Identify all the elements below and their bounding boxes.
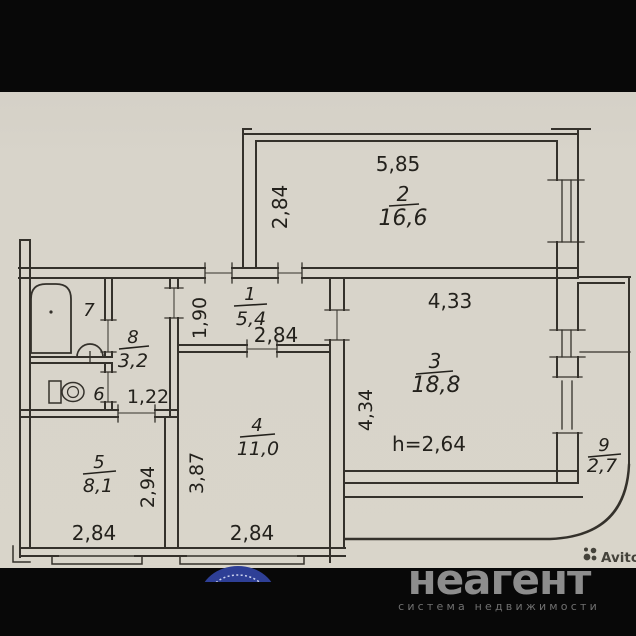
- room8-area: 3,2: [118, 350, 148, 372]
- room4-area: 11,0: [237, 438, 279, 460]
- dim-wc-width: 1,22: [127, 386, 169, 408]
- room1-number: 1: [244, 284, 255, 305]
- room5-area: 8,1: [83, 475, 113, 497]
- dim-room4-width: 2,84: [230, 521, 275, 545]
- room3-number: 3: [429, 349, 442, 373]
- dim-room4-depth: 3,87: [186, 452, 208, 494]
- room9-number: 9: [598, 435, 609, 456]
- agency-brand: неагент: [408, 555, 592, 604]
- avito-dot-icon: [584, 548, 588, 552]
- dim-hall-width: 2,84: [254, 323, 299, 347]
- dim-room3-width: 4,33: [428, 289, 473, 313]
- dim-room2-depth: 2,84: [268, 185, 292, 230]
- room9-area: 2,7: [587, 455, 617, 477]
- dim-room3-depth: 4,34: [355, 389, 377, 431]
- dim-room5-width: 2,84: [72, 521, 117, 545]
- dim-hall-depth: 1,90: [189, 297, 211, 339]
- room7-number: 7: [83, 300, 95, 321]
- room5-number: 5: [93, 452, 104, 473]
- agency-watermark: неагент система недвижимости: [398, 555, 600, 613]
- dim-room2-width: 5,85: [376, 152, 421, 176]
- room2-number: 2: [397, 182, 410, 206]
- top-black-band: [0, 0, 636, 92]
- avito-dot-icon: [591, 548, 597, 554]
- room8-number: 8: [127, 327, 138, 348]
- floorplan-photo: 5,85 2,84 2 16,6 1 5,4 1,90 2,84 7 8 3,2…: [0, 0, 636, 636]
- ceiling-height-note: h=2,64: [392, 432, 466, 456]
- room6-number: 6: [93, 384, 104, 405]
- room4-number: 4: [251, 415, 262, 436]
- avito-dot-icon: [592, 556, 597, 561]
- bathtub-drain-icon: [49, 310, 52, 313]
- room3-area: 18,8: [412, 373, 461, 398]
- dim-room5-depth: 2,94: [137, 466, 159, 508]
- agency-tagline: система недвижимости: [398, 600, 600, 613]
- floorplan-canvas: 5,85 2,84 2 16,6 1 5,4 1,90 2,84 7 8 3,2…: [0, 0, 636, 636]
- avito-label: Avito: [601, 550, 636, 566]
- room2-area: 16,6: [379, 206, 428, 231]
